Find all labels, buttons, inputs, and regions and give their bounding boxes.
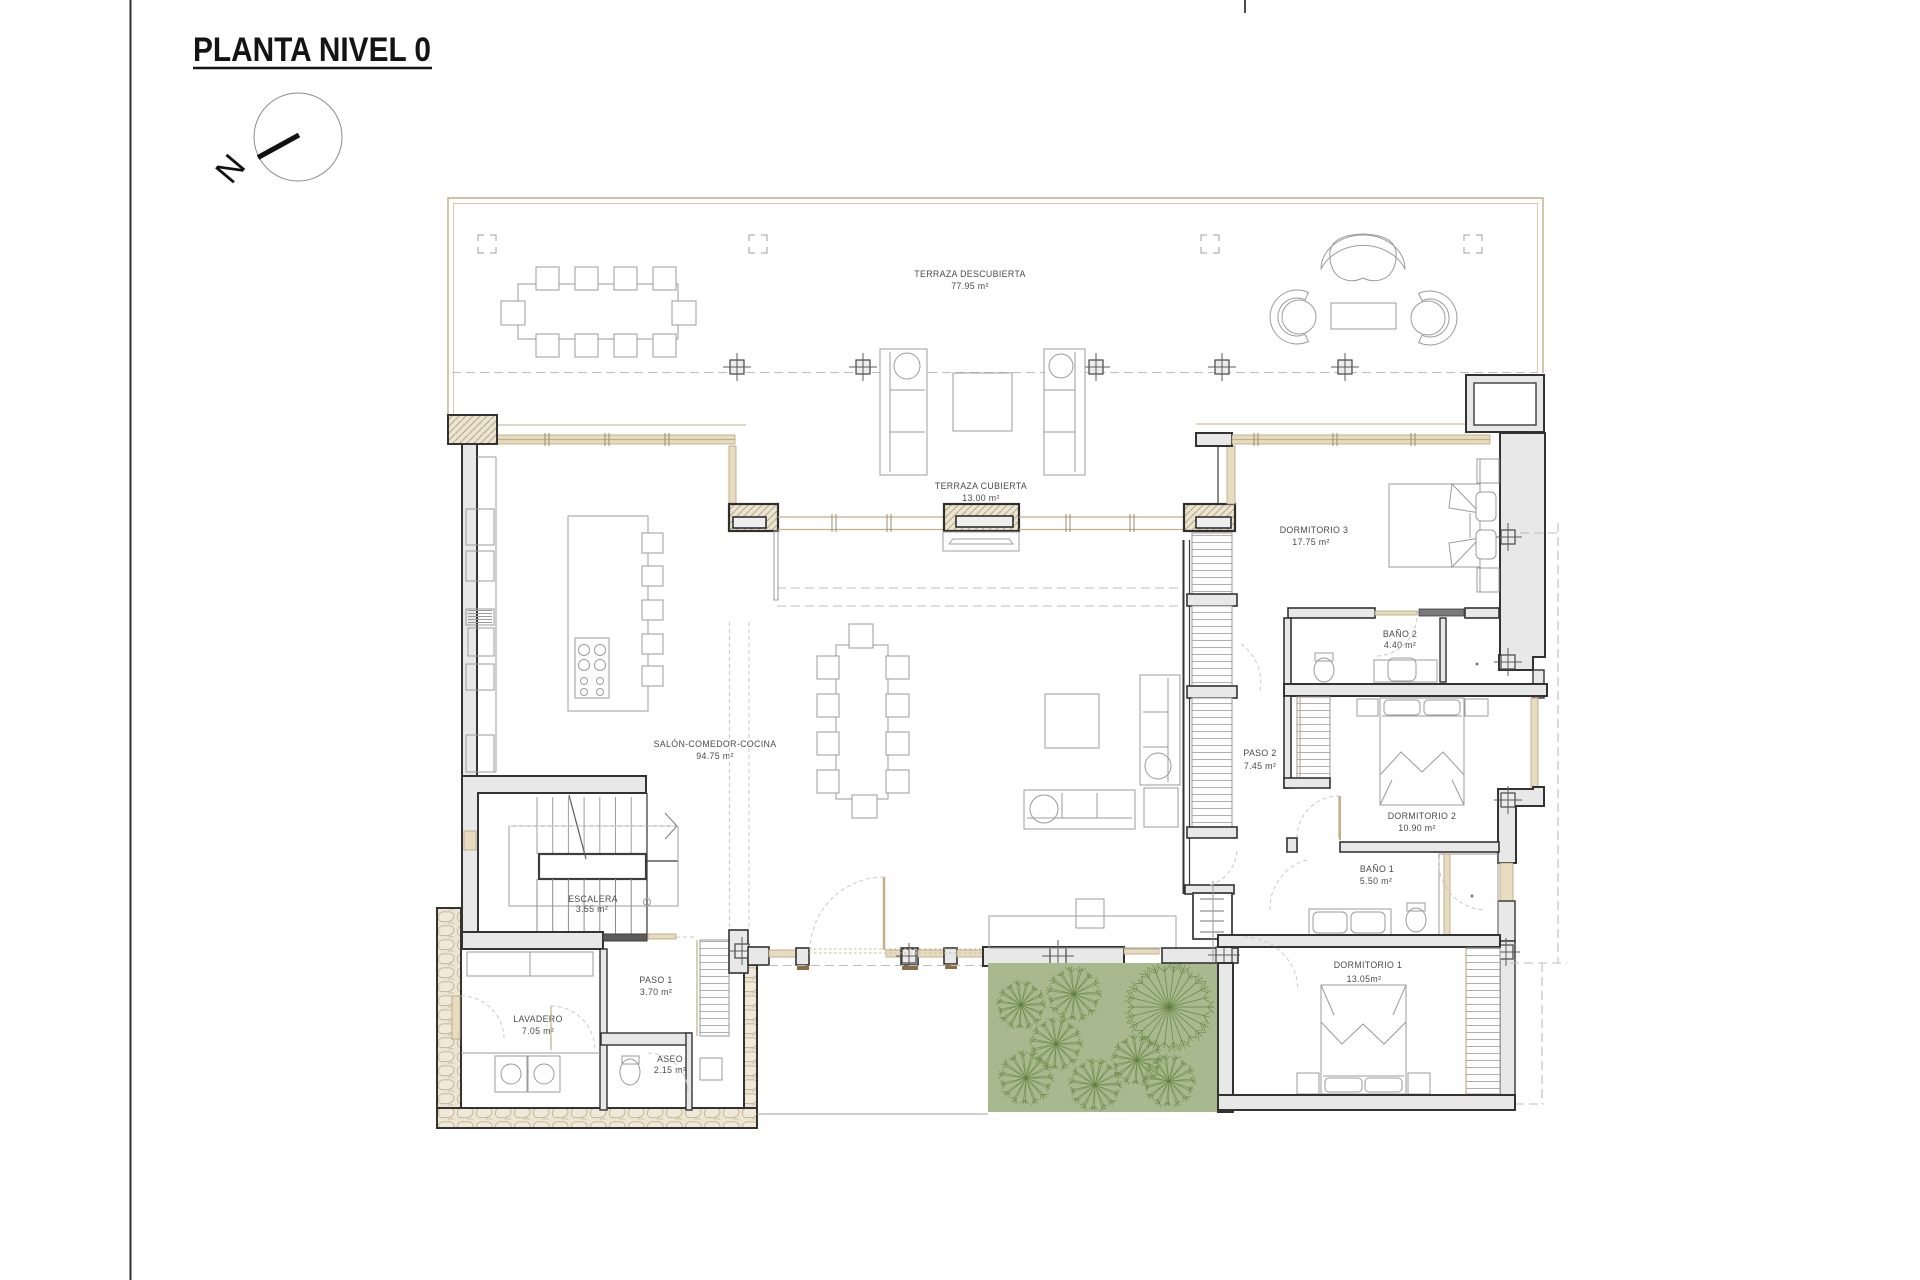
svg-text:7.05 m²: 7.05 m² <box>522 1026 554 1036</box>
svg-text:3.70 m²: 3.70 m² <box>640 987 672 997</box>
svg-text:PASO 1: PASO 1 <box>639 975 672 985</box>
svg-text:5.50 m²: 5.50 m² <box>1360 876 1392 886</box>
svg-text:PASO 2: PASO 2 <box>1243 748 1276 758</box>
svg-text:DORMITORIO 1: DORMITORIO 1 <box>1334 960 1403 970</box>
svg-text:BAÑO 1: BAÑO 1 <box>1360 864 1394 874</box>
svg-text:7.45 m²: 7.45 m² <box>1244 761 1276 771</box>
svg-text:TERRAZA DESCUBIERTA: TERRAZA DESCUBIERTA <box>914 269 1025 279</box>
svg-text:13.05m²: 13.05m² <box>1347 974 1382 984</box>
svg-text:DORMITORIO 2: DORMITORIO 2 <box>1388 811 1457 821</box>
svg-text:94.75 m²: 94.75 m² <box>696 751 734 761</box>
svg-text:LAVADERO: LAVADERO <box>513 1014 562 1024</box>
svg-text:77.95 m²: 77.95 m² <box>951 281 989 291</box>
svg-text:ESCALERA: ESCALERA <box>568 894 618 904</box>
svg-text:13.00 m²: 13.00 m² <box>962 493 1000 503</box>
svg-text:17.75 m²: 17.75 m² <box>1292 537 1330 547</box>
svg-text:SALÓN-COMEDOR-COCINA: SALÓN-COMEDOR-COCINA <box>654 739 777 749</box>
svg-text:3.55 m²: 3.55 m² <box>576 904 608 914</box>
svg-text:DORMITORIO 3: DORMITORIO 3 <box>1280 525 1349 535</box>
svg-text:10.90 m²: 10.90 m² <box>1398 823 1436 833</box>
svg-text:TERRAZA CUBIERTA: TERRAZA CUBIERTA <box>935 481 1027 491</box>
svg-text:PLANTA NIVEL 0: PLANTA NIVEL 0 <box>193 31 431 69</box>
